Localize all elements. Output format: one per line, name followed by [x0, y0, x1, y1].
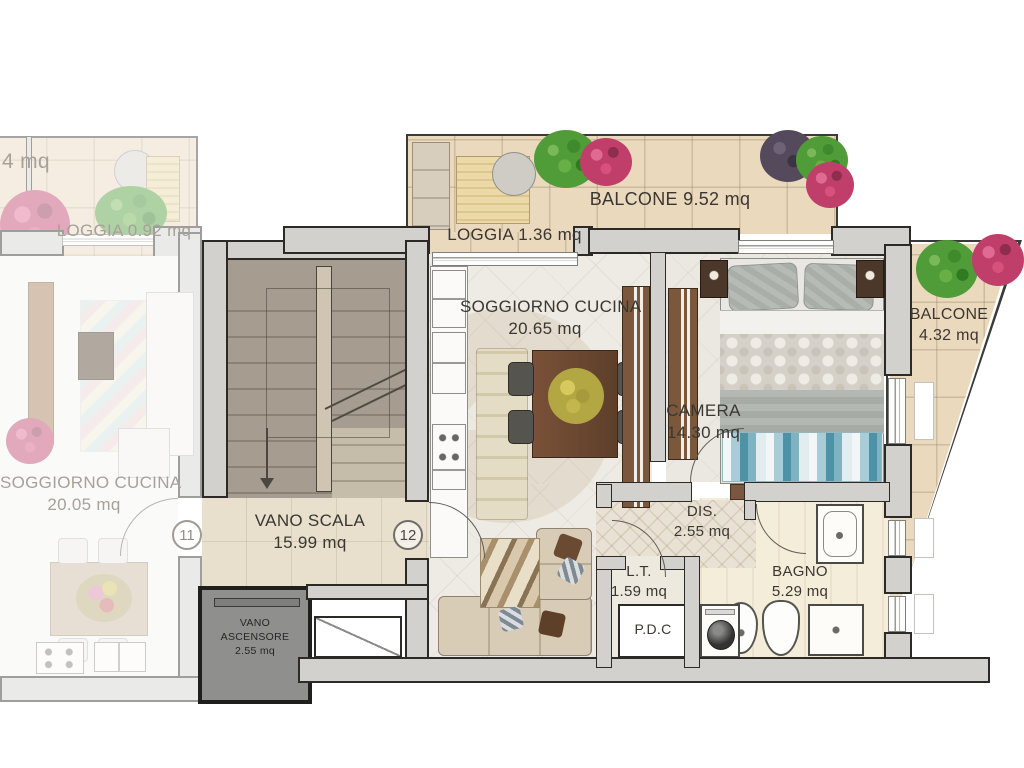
washer-panel [705, 609, 735, 615]
washer-drum [707, 620, 735, 650]
wall-segment [202, 240, 228, 498]
armchair [118, 428, 170, 478]
room-label-pdc: P.D.C [618, 620, 688, 638]
plant [916, 240, 978, 298]
floor-plan-canvas: VANO ASCENSORE 2.55 mq [0, 0, 1024, 768]
wall-segment [884, 556, 912, 594]
window-bagno-right [888, 596, 906, 632]
stairs-direction-arrow [260, 478, 274, 489]
window-sill [914, 518, 934, 558]
room-label-balcone-right: BALCONE 4.32 mq [895, 304, 1003, 346]
balcony-sofa [412, 142, 450, 230]
wall-segment [405, 558, 429, 668]
elevator-shaft: VANO ASCENSORE 2.55 mq [198, 586, 312, 704]
bed-pillow [727, 262, 799, 312]
kitchen-sink [432, 332, 466, 394]
cooktop-left [36, 642, 84, 674]
unit-number-11: 11 [172, 520, 202, 550]
room-label-soggiorno-main: SOGGIORNO CUCINA 20.65 mq [460, 296, 630, 341]
nightstand [856, 260, 884, 298]
shower [808, 604, 864, 656]
washing-machine [700, 604, 740, 658]
sliding-door-soggiorno [432, 252, 578, 266]
unit-number-12: 12 [393, 520, 423, 550]
nightstand [700, 260, 728, 298]
plant [580, 138, 632, 186]
bathtub-faucet [836, 532, 843, 539]
chair [58, 538, 88, 564]
room-label-loggia-top: LOGGIA 1.36 mq [432, 224, 597, 246]
window-bagno-right [888, 520, 906, 556]
elevator-mechanism [214, 598, 300, 607]
wall-segment [884, 444, 912, 518]
chair [508, 362, 534, 396]
sofa-pillow [538, 610, 566, 638]
window-sill [914, 594, 934, 634]
plant [972, 234, 1024, 286]
balcony-round-table [492, 152, 536, 196]
stairs-walkline [266, 288, 390, 438]
wall-segment [0, 676, 202, 702]
wall-segment [684, 556, 700, 668]
room-label-lt: L.T. 1.59 mq [600, 562, 678, 602]
room-label-balcone-top: BALCONE 9.52 mq [540, 188, 800, 212]
wall-segment [884, 632, 912, 660]
bed-duvet-floral [720, 334, 884, 392]
sink-left [94, 642, 146, 672]
stairs-direction-line [266, 428, 268, 480]
room-label-camera: CAMERA 14.30 mq [656, 400, 751, 445]
plant [6, 418, 54, 464]
room-label-vano-scala: VANO SCALA 15.99 mq [230, 510, 390, 555]
wall-segment [298, 657, 990, 683]
table-centerpiece [548, 368, 604, 424]
chair [508, 410, 534, 444]
bouquet [76, 574, 132, 622]
room-label-dis: DIS. 2.55 mq [648, 502, 756, 542]
room-label-bagno: BAGNO 5.29 mq [752, 562, 848, 602]
window-sill [914, 382, 934, 440]
kitchen-cooktop [432, 424, 466, 490]
wall-segment [744, 482, 890, 502]
plant [806, 162, 854, 208]
shaft-window [314, 616, 402, 658]
wall-segment [405, 240, 429, 502]
window-camera-top [738, 240, 834, 254]
wall-segment [596, 484, 612, 508]
room-label-cut-left: 4 mq [2, 148, 72, 176]
wall-segment [588, 228, 740, 254]
living-rug [480, 538, 540, 608]
bed-sheet-fold [720, 310, 884, 336]
elevator-label: VANO ASCENSORE 2.55 mq [202, 616, 308, 659]
bathtub [816, 504, 864, 564]
room-label-loggia-left: LOGGIA 0.92 mq [52, 220, 196, 242]
coffee-table [78, 332, 114, 380]
wall-segment [306, 584, 429, 600]
window-camera-right [888, 378, 906, 444]
room-label-soggiorno-left: SOGGIORNO CUCINA 20.05 mq [0, 472, 168, 517]
